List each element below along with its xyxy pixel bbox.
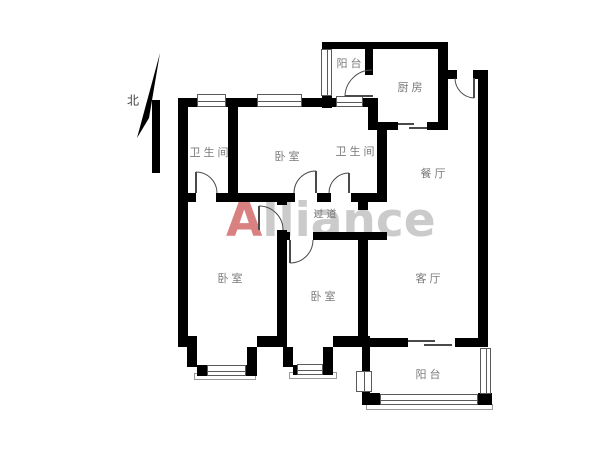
floor-plan: Alliance 阳台 厨房 卫生间 卧室 卫生间 餐厅 过道 卧室 卧室 客厅… [0, 0, 600, 449]
room-label-bedroom-top: 卧室 [272, 148, 303, 164]
wall-segment [438, 42, 448, 130]
wall-segment [448, 70, 457, 79]
wall-segment [322, 42, 448, 49]
room-label-balcony-bottom: 阳台 [413, 366, 444, 382]
window [297, 364, 323, 375]
window [321, 49, 332, 96]
room-label-bathroom-2: 卫生间 [333, 143, 378, 159]
wall-segment [277, 232, 290, 240]
sliding-door-line [409, 127, 427, 129]
room-label-hallway: 过道 [311, 206, 340, 221]
window [207, 365, 246, 376]
window [336, 96, 363, 107]
window [356, 371, 372, 392]
sliding-door-line [398, 123, 414, 125]
wall-segment [365, 49, 373, 75]
wall-segment [283, 347, 293, 367]
room-label-bedroom-mid: 卧室 [308, 288, 339, 304]
room-label-bedroom-left: 卧室 [215, 270, 246, 286]
wall-segment [373, 122, 398, 130]
room-label-living: 客厅 [413, 270, 444, 286]
wall-segment [245, 365, 257, 376]
wall-segment [351, 193, 387, 202]
wall-segment [478, 79, 488, 347]
wall-segment [333, 336, 370, 347]
wall-segment [257, 336, 283, 347]
wall-segment [473, 70, 488, 79]
door-bathroom-1 [196, 172, 217, 193]
room-label-balcony-top: 阳台 [334, 55, 365, 71]
wall-segment [323, 347, 333, 367]
door-bathroom-2 [329, 173, 349, 193]
wall-segment [178, 98, 188, 347]
wall-segment [362, 393, 380, 405]
wall-segment [313, 232, 387, 240]
door-bedroom-top [294, 171, 316, 193]
window [197, 94, 226, 107]
window [480, 348, 491, 394]
wall-segment [370, 338, 408, 347]
door-entry [455, 78, 474, 98]
wall-segment [247, 347, 257, 367]
wall-segment [377, 122, 387, 202]
window [380, 394, 478, 405]
wall-segment [277, 193, 287, 205]
wall-segment [455, 338, 478, 347]
wall-segment [178, 193, 196, 202]
wall-segment [358, 240, 368, 347]
room-label-bathroom-1: 卫生间 [187, 144, 232, 160]
wall-segment [317, 193, 331, 202]
window [257, 94, 302, 107]
wall-segment [187, 347, 197, 367]
north-arrow [137, 53, 160, 173]
room-label-dining: 餐厅 [418, 165, 449, 181]
sliding-door-line [408, 340, 435, 342]
compass-label: 北 [127, 92, 139, 109]
wall-segment [277, 230, 287, 347]
wall-segment [427, 122, 448, 130]
wall-segment [178, 336, 197, 347]
sliding-door-line [424, 344, 452, 346]
wall-segment [478, 393, 492, 405]
wall-segment [358, 202, 368, 210]
room-label-kitchen: 厨房 [395, 79, 426, 95]
